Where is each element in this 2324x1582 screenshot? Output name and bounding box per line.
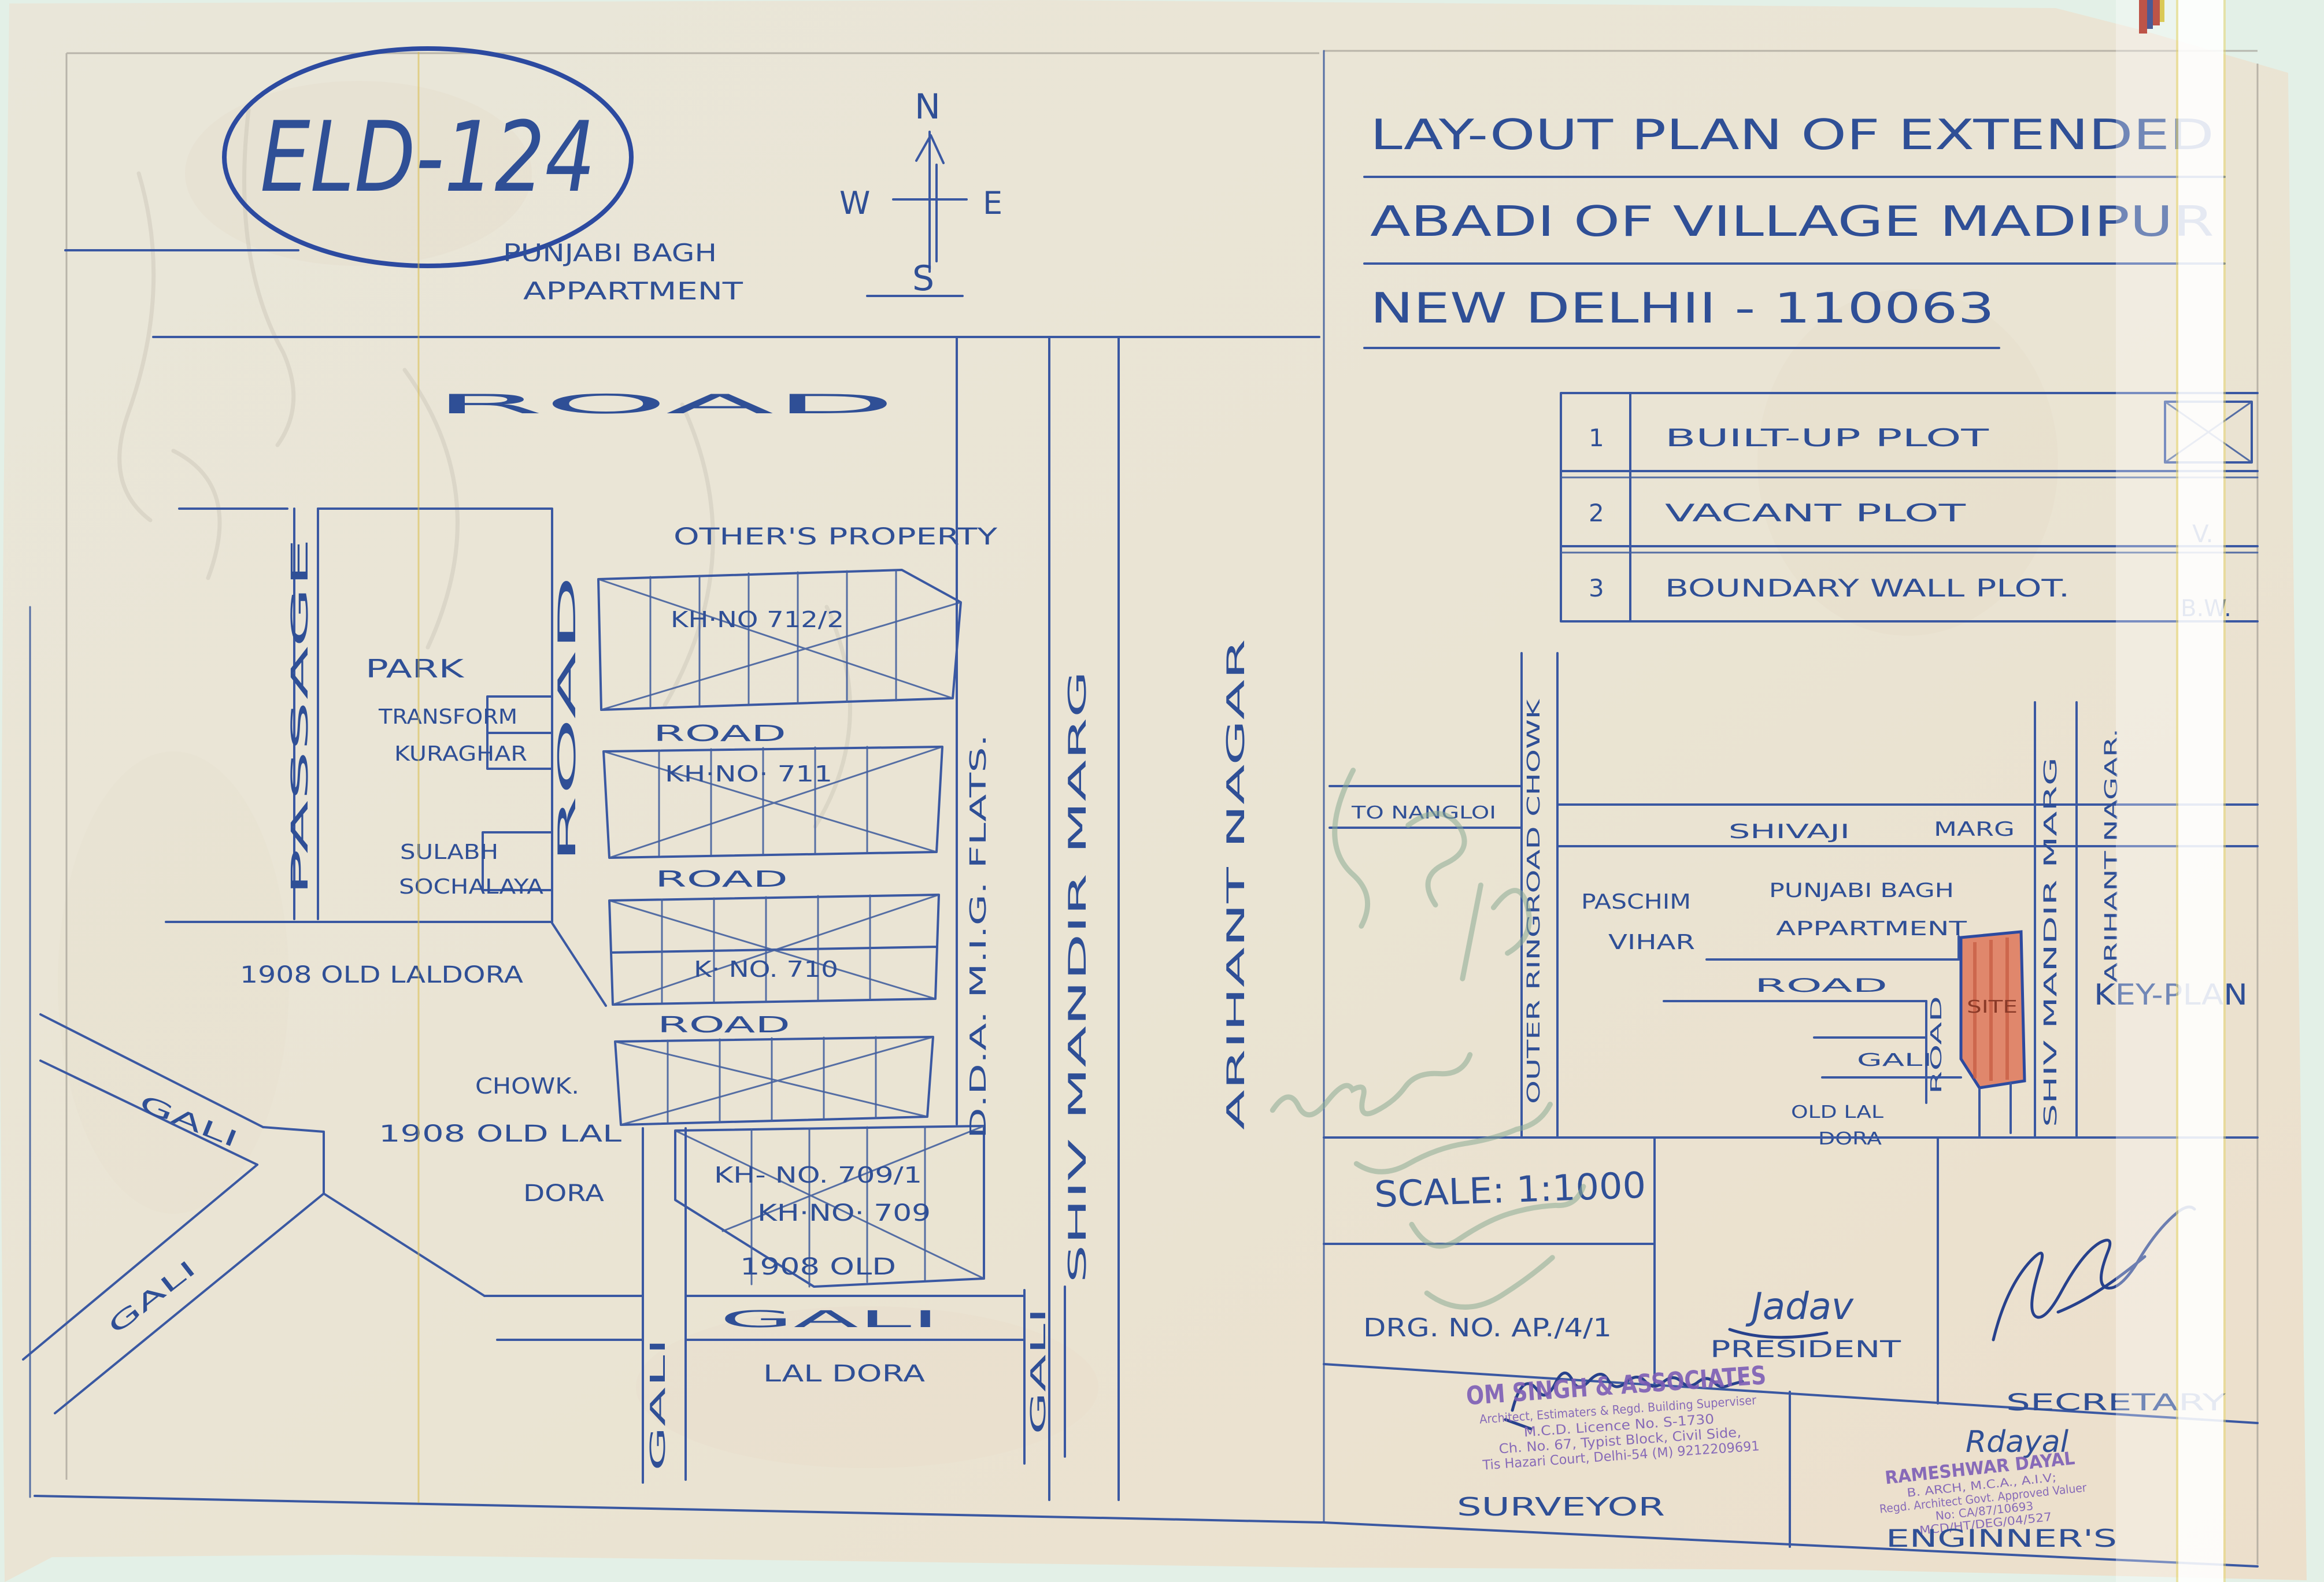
gali-horizontal-label: GALI bbox=[720, 1306, 939, 1333]
president-label: PRESIDENT bbox=[1710, 1336, 1901, 1363]
keyplan-gali-label: GALI bbox=[1857, 1050, 1932, 1070]
legend-row1-no: 1 bbox=[1589, 424, 1604, 452]
old-1908-label: 1908 OLD bbox=[740, 1254, 896, 1280]
keyplan-shiv-mandir-marg-label: SHIV MANDIR MARG bbox=[2041, 757, 2061, 1127]
keyplan-dora-label: DORA bbox=[1818, 1129, 1882, 1149]
park-label: PARK bbox=[365, 654, 465, 684]
surveyor-label: SURVEYOR bbox=[1457, 1492, 1665, 1522]
compass-north: N bbox=[915, 87, 941, 127]
plan-drawing: ELD-124 N W E S PUNJABI BAGH APPARTMENT … bbox=[0, 0, 2324, 1582]
chowk-label: CHOWK. bbox=[475, 1073, 579, 1099]
arihant-nagar-label: ARIHANT NAGAR bbox=[1222, 639, 1250, 1130]
keyplan-road-vertical-label: ROAD bbox=[1928, 996, 1945, 1094]
title-line1: LAY-OUT PLAN OF EXTENDED bbox=[1370, 110, 2214, 159]
kuraghar-label: KURAGHAR bbox=[394, 742, 527, 766]
kh-710-label: K· NO. 710 bbox=[694, 957, 838, 982]
legend-row3-no: 3 bbox=[1589, 574, 1604, 602]
engineer-label: ENGINNER'S bbox=[1886, 1524, 2117, 1553]
lal-dora-label: LAL DORA bbox=[763, 1361, 926, 1387]
keyplan-road-label: ROAD bbox=[1755, 975, 1888, 996]
road-top-label: ROAD bbox=[434, 388, 896, 420]
old-lal-left-label: 1908 OLD LAL bbox=[379, 1121, 622, 1147]
file-code: ELD-124 bbox=[260, 101, 595, 214]
legend-row1-label: BUILT-UP PLOT bbox=[1665, 424, 1989, 452]
title-line3: NEW DELHII - 110063 bbox=[1370, 284, 1994, 332]
paschim-label: PASCHIM bbox=[1581, 890, 1691, 914]
dora-left-label: DORA bbox=[523, 1180, 605, 1207]
transform-label: TRANSFORM bbox=[378, 705, 517, 729]
scanned-layout-plan-sheet: ELD-124 N W E S PUNJABI BAGH APPARTMENT … bbox=[0, 0, 2324, 1582]
compass-east: E bbox=[983, 185, 1002, 221]
compass-west: W bbox=[839, 185, 870, 221]
kh-711-label: KH·NO· 711 bbox=[665, 761, 832, 787]
vihar-label: VIHAR bbox=[1608, 931, 1695, 954]
to-nangloi-label: TO NANGLOI bbox=[1351, 803, 1496, 823]
shivaji-marg-label: MARG bbox=[1934, 818, 2015, 841]
keyplan-appartment-label: APPARTMENT bbox=[1776, 917, 1967, 940]
kh-709-1-label: KH- NO. 709/1 bbox=[714, 1162, 922, 1188]
drawing-no-label: DRG. NO. AP./4/1 bbox=[1363, 1313, 1612, 1343]
old-laldora-label: 1908 OLD LALDORA bbox=[240, 962, 524, 988]
legend-row3-label: BOUNDARY WALL PLOT. bbox=[1665, 574, 2070, 602]
others-property-label: OTHER'S PROPERTY bbox=[673, 524, 998, 550]
road-mid2-label: ROAD bbox=[655, 866, 788, 892]
kh-712-2-label: KH·NO 712/2 bbox=[671, 607, 844, 632]
gali-vertical-right-label: GALI bbox=[1027, 1307, 1050, 1435]
sulabh-label: SULABH bbox=[400, 840, 498, 864]
punjabi-bagh-label: PUNJABI BAGH bbox=[503, 239, 717, 267]
keyplan-punjabi-bagh-label: PUNJABI BAGH bbox=[1769, 879, 1954, 902]
scan-fold-glow bbox=[2116, 0, 2178, 1582]
road-vertical-label: ROAD bbox=[553, 575, 581, 864]
compass-south: S bbox=[912, 258, 934, 299]
appartment-label: APPARTMENT bbox=[523, 277, 743, 305]
passage-label: PASSAGE bbox=[287, 538, 313, 896]
title-line2: ABADI OF VILLAGE MADIPUR bbox=[1370, 197, 2214, 246]
gali-vertical-left-label: GALI bbox=[646, 1338, 670, 1471]
road-mid1-label: ROAD bbox=[653, 721, 786, 746]
legend-row2-label: VACANT PLOT bbox=[1665, 499, 1966, 527]
site-label: SITE bbox=[1967, 997, 2018, 1017]
old-lal-label: OLD LAL bbox=[1791, 1102, 1883, 1122]
shiv-mandir-marg-label: SHIV MANDIR MARG bbox=[1063, 670, 1091, 1283]
shivaji-label: SHIVAJI bbox=[1729, 820, 1850, 843]
road-mid3-label: ROAD bbox=[657, 1012, 790, 1038]
president-signature: Jadav bbox=[1745, 1285, 1854, 1328]
kh-709-label: KH·NO· 709 bbox=[757, 1200, 931, 1227]
scan-fold-stripe bbox=[2178, 0, 2223, 1582]
legend-row2-no: 2 bbox=[1589, 499, 1604, 527]
dda-mig-flats-label: D.D.A. M.I.G. FLATS. bbox=[965, 734, 991, 1139]
sochalaya-label: SOCHALAYA bbox=[399, 875, 543, 899]
